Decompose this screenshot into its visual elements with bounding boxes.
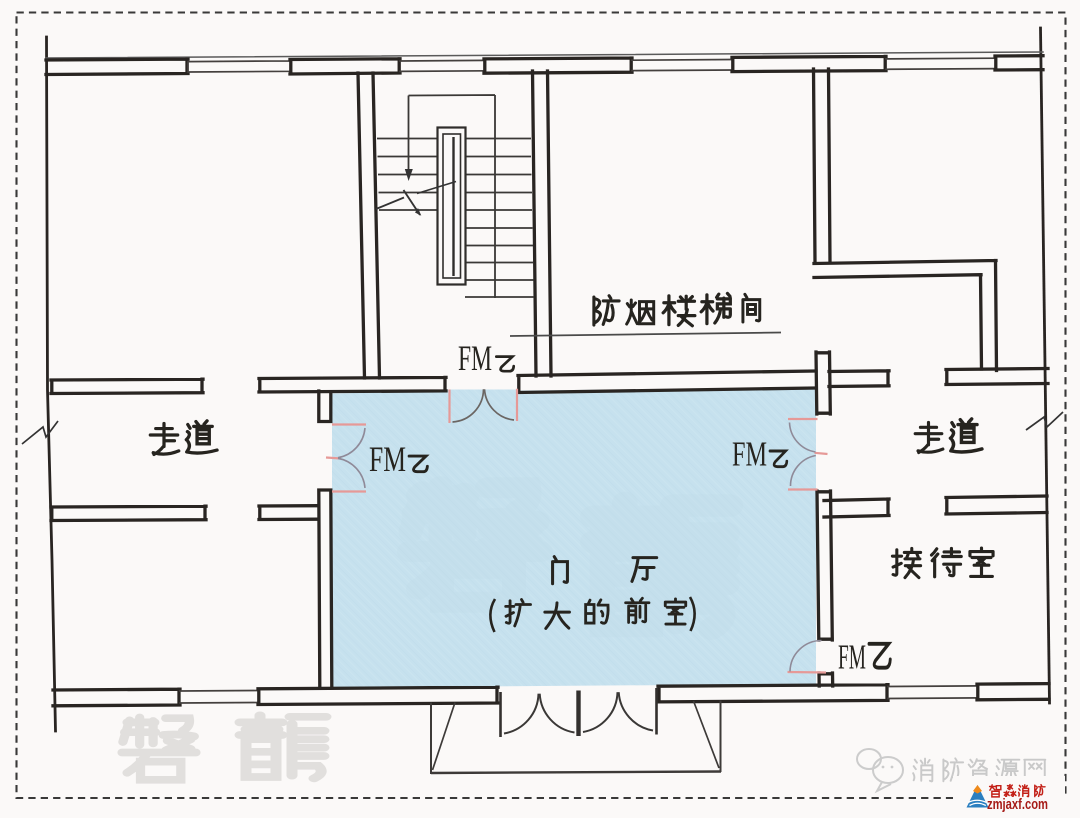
svg-text:FM: FM — [369, 439, 406, 479]
svg-text:FM: FM — [838, 638, 866, 677]
svg-text:zmjaxf.com: zmjaxf.com — [987, 797, 1048, 813]
svg-text:FM: FM — [732, 435, 767, 474]
svg-text:FM: FM — [458, 338, 492, 378]
